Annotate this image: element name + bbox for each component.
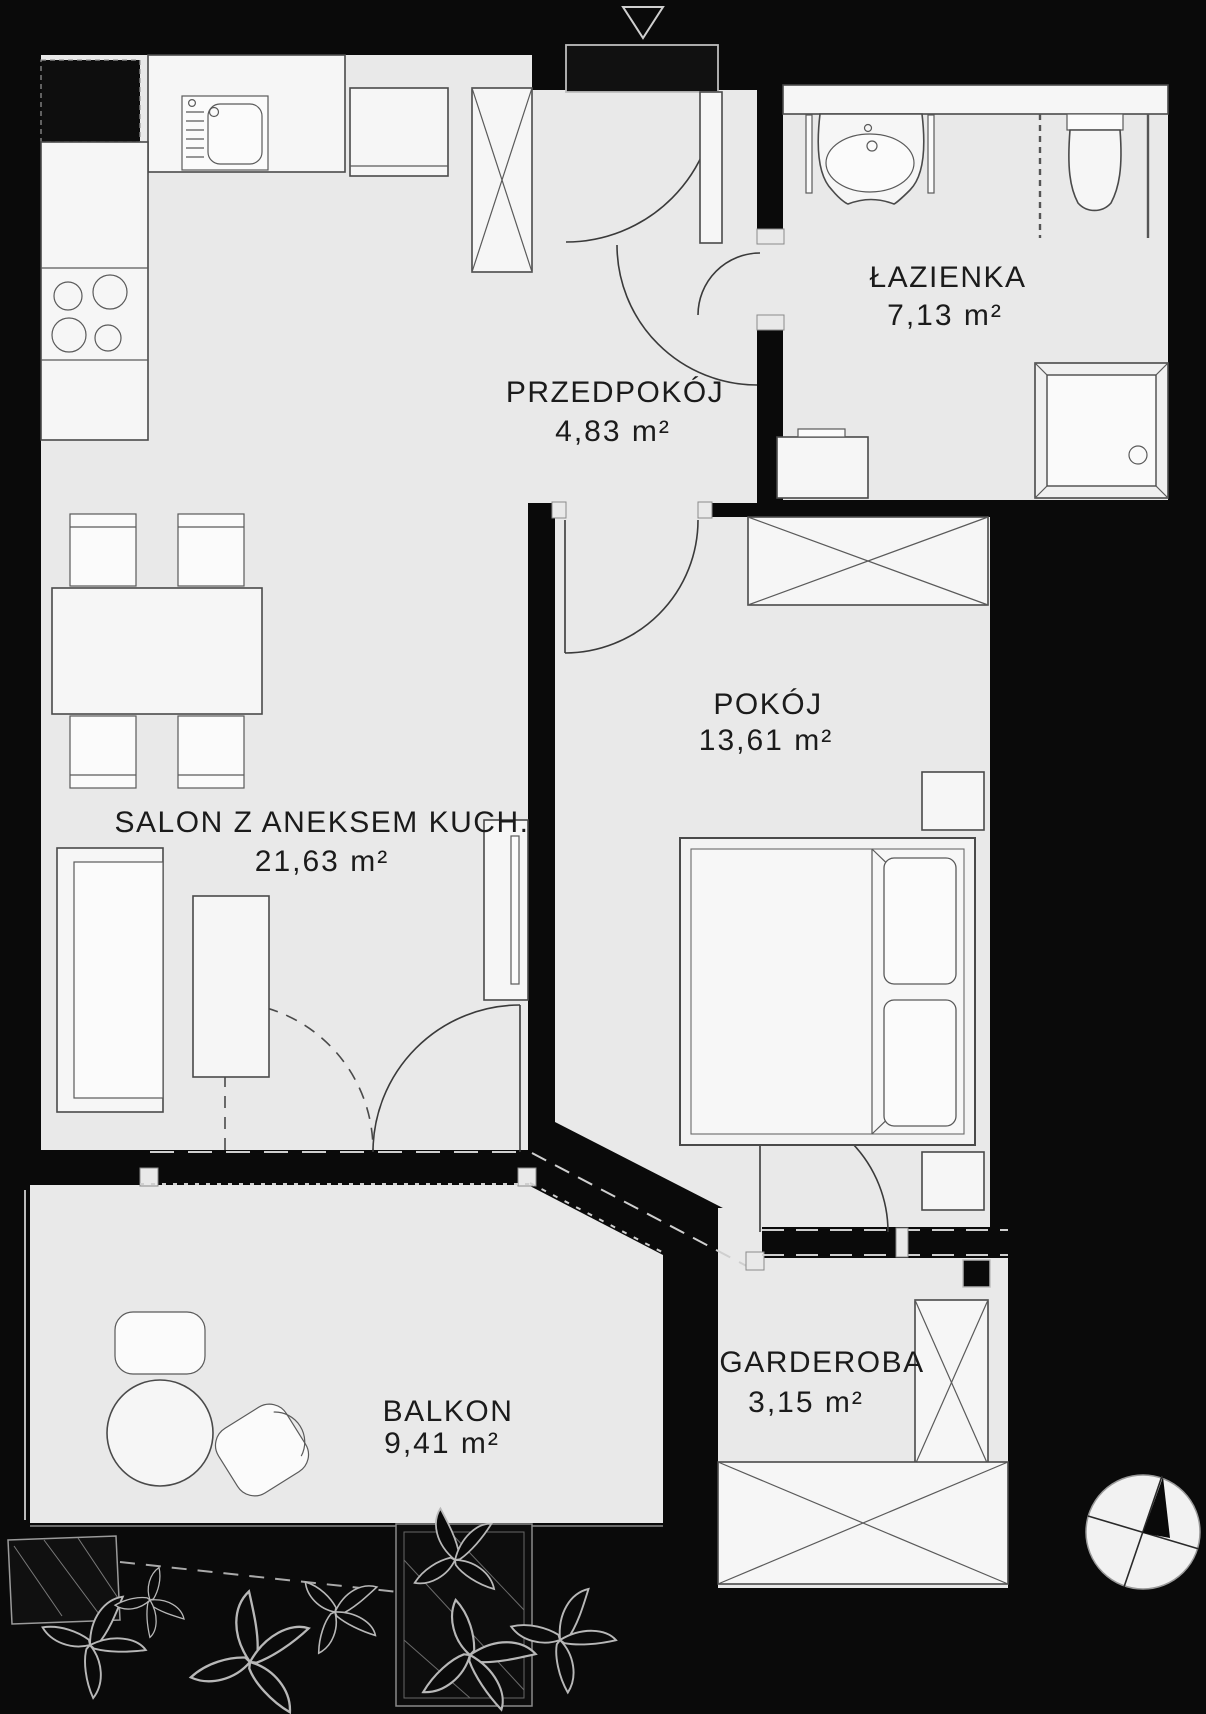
- pokoj-label: POKÓJ: [713, 688, 822, 721]
- tv-cabinet-icon: [484, 820, 528, 1000]
- bed-icon: [680, 838, 975, 1145]
- chair-icon: [178, 716, 244, 788]
- entrance-door-icon: [566, 45, 718, 92]
- balkon-label: BALKON: [383, 1395, 514, 1428]
- coffee-table-icon: [193, 896, 269, 1077]
- wardrobe-icon: [718, 1462, 1008, 1584]
- lazienka-label: ŁAZIENKA: [869, 261, 1026, 294]
- door-post: [698, 502, 712, 518]
- wardrobe-icon: [748, 517, 988, 605]
- bathroom-door-gap: [755, 243, 786, 317]
- door-post: [757, 315, 784, 330]
- fridge-icon: [350, 88, 448, 176]
- kitchen-sink-icon: [182, 96, 268, 170]
- kitchen-counter-left: [41, 142, 148, 440]
- hall-closet-icon: [700, 92, 722, 243]
- salon-area: 21,63 m²: [255, 845, 389, 878]
- chair-icon: [70, 716, 136, 788]
- bedroom-door-gap: [565, 500, 700, 520]
- garderoba-label: GARDEROBA: [719, 1346, 924, 1379]
- garderoba-area: 3,15 m²: [748, 1386, 864, 1419]
- wall-post: [896, 1228, 908, 1257]
- balkon-area: 9,41 m²: [384, 1427, 500, 1460]
- sofa-icon: [57, 848, 163, 1112]
- chair-icon: [70, 514, 136, 586]
- door-post: [757, 229, 784, 244]
- przedpokoj-label: PRZEDPOKÓJ: [506, 376, 724, 409]
- balcony-table-icon: [107, 1380, 213, 1486]
- shaft-icon: [963, 1260, 990, 1287]
- pillow-icon: [884, 1000, 956, 1126]
- wall-post: [746, 1252, 764, 1270]
- przedpokoj-area: 4,83 m²: [555, 415, 671, 448]
- compass-icon: [1086, 1475, 1200, 1589]
- shaft-icon: [41, 60, 140, 142]
- toilet-icon: [1067, 114, 1123, 210]
- balcony-chair-icon: [115, 1312, 205, 1374]
- pillow-icon: [884, 858, 956, 984]
- nightstand-icon: [922, 772, 984, 830]
- dining-table-icon: [52, 588, 262, 714]
- shower-icon: [1035, 363, 1168, 498]
- chair-icon: [178, 514, 244, 586]
- bathroom-ledge: [783, 85, 1168, 114]
- wardrobe-icon: [915, 1300, 988, 1465]
- nightstand-icon: [922, 1152, 984, 1210]
- tall-cabinet-icon: [472, 88, 532, 272]
- lazienka-area: 7,13 m²: [887, 299, 1003, 332]
- door-post: [552, 502, 566, 518]
- floorplan-canvas: PRZEDPOKÓJ 4,83 m² ŁAZIENKA 7,13 m² POKÓ…: [0, 0, 1206, 1714]
- salon-label: SALON Z ANEKSEM KUCH.: [115, 806, 530, 839]
- washing-machine-icon: [777, 429, 868, 498]
- pokoj-area: 13,61 m²: [699, 724, 833, 757]
